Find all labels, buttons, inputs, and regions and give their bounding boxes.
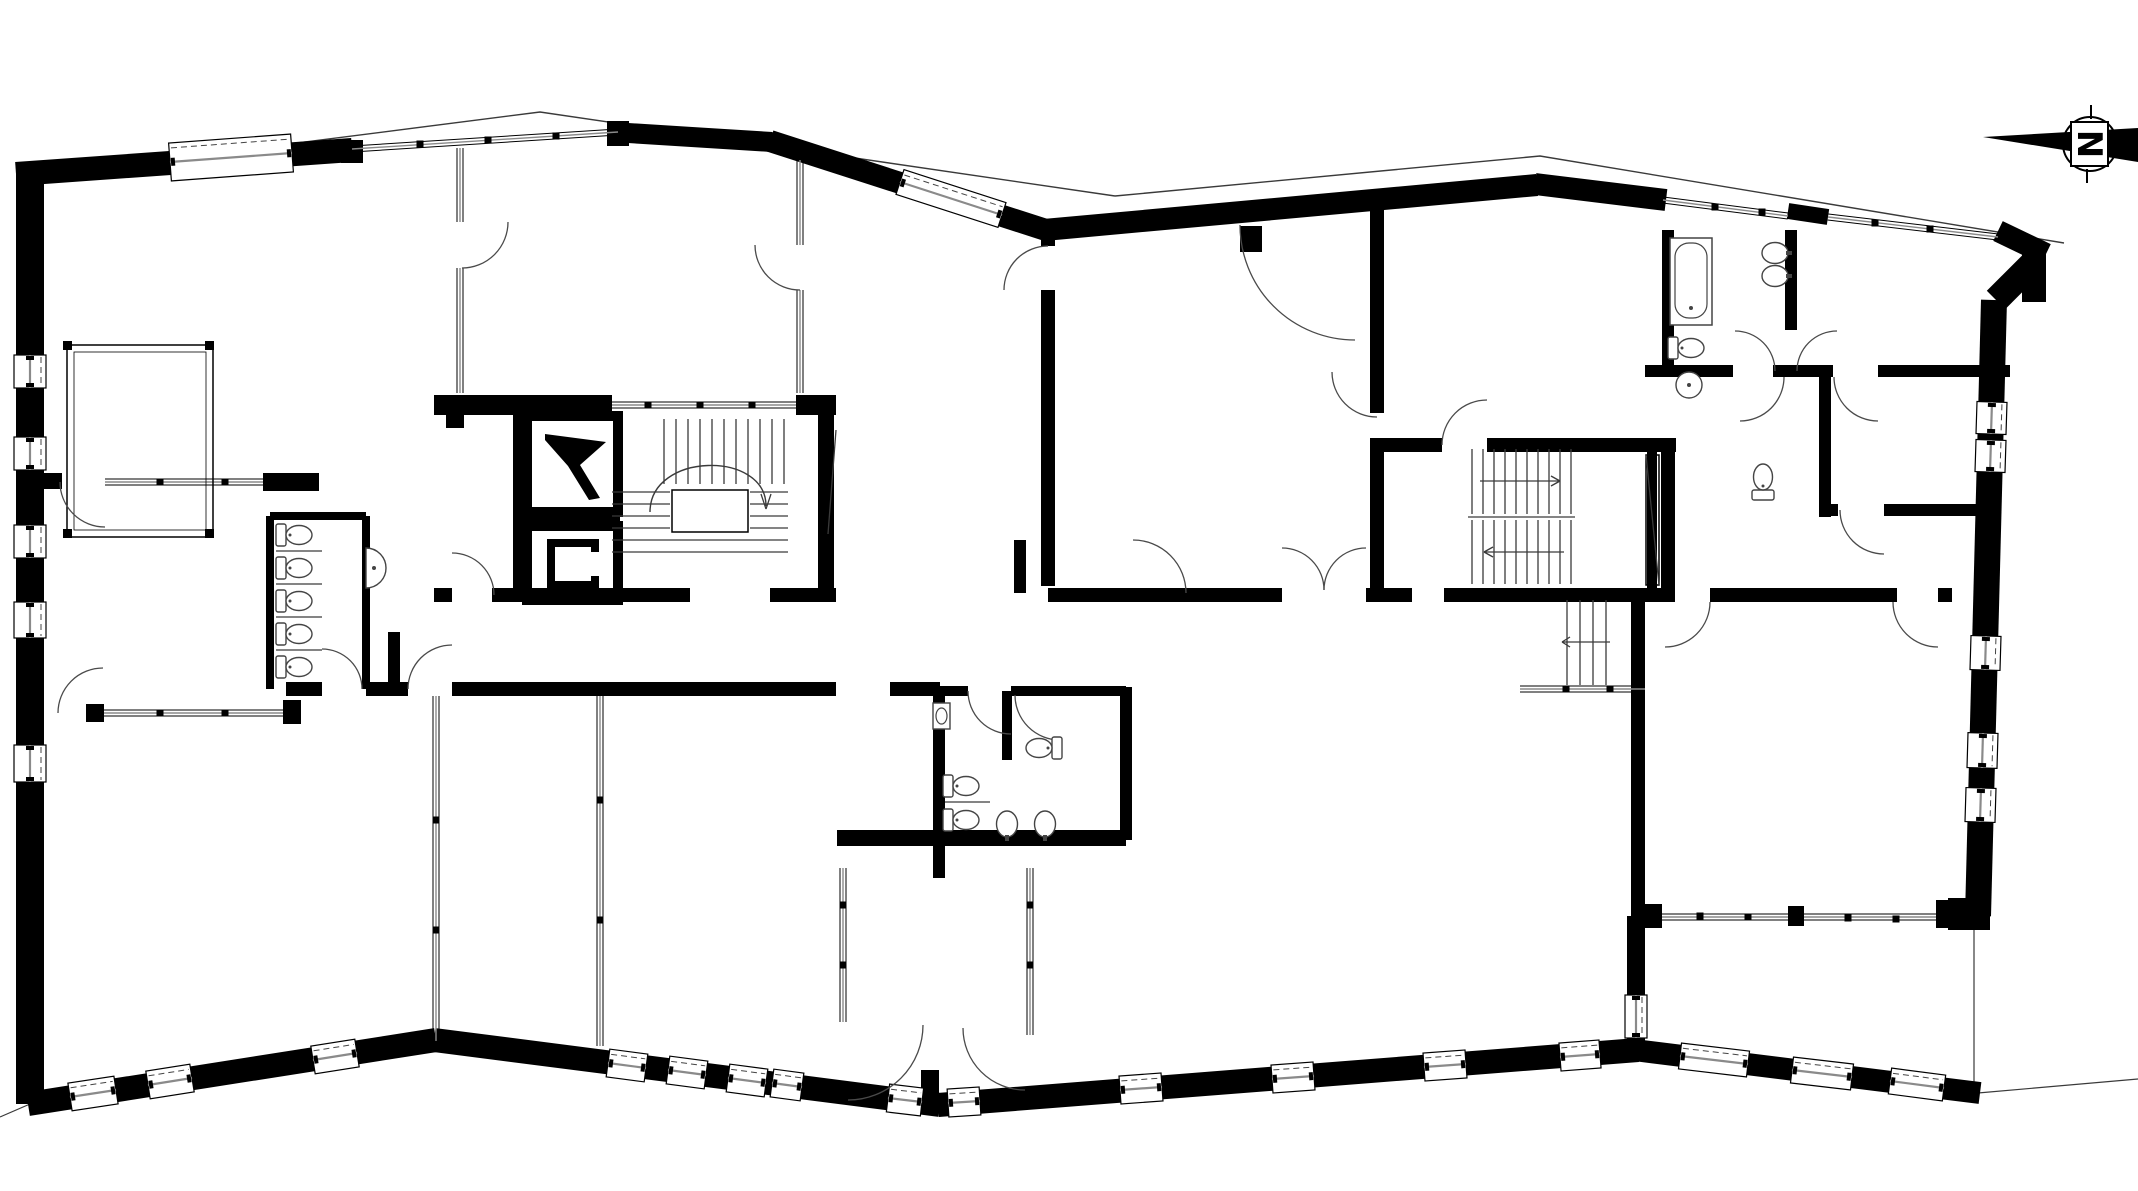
glass-partition xyxy=(597,696,603,1046)
window-symbol xyxy=(1625,995,1647,1038)
window-symbol xyxy=(947,1087,981,1117)
door-swing-arc xyxy=(1324,548,1366,590)
plumbing-fixtures xyxy=(276,238,1792,841)
window-symbol xyxy=(1888,1068,1945,1101)
glass-partition xyxy=(457,148,463,222)
window-symbol xyxy=(1965,788,1996,823)
walls xyxy=(16,121,2046,1105)
washbox-symbol xyxy=(933,703,950,729)
door-swing-arc xyxy=(1840,510,1884,554)
window-symbol xyxy=(770,1069,804,1101)
toilet-symbol xyxy=(276,557,312,579)
glass-partition xyxy=(1520,686,1645,692)
window-symbol xyxy=(1975,440,2006,473)
door-swing-arc xyxy=(1893,602,1938,647)
window-symbol xyxy=(169,134,294,181)
roundbasin-symbol xyxy=(1676,372,1702,398)
window-symbol xyxy=(14,437,46,470)
door-swing-arc xyxy=(408,645,452,689)
floor-plan-page: N xyxy=(0,0,2138,1191)
door-swing-arc xyxy=(755,245,800,290)
glass-partition xyxy=(840,868,846,1022)
door-swing-arc xyxy=(1015,695,1060,740)
window-symbol xyxy=(1559,1040,1601,1071)
door-swing-arc xyxy=(963,1028,1025,1090)
toilet-symbol xyxy=(1752,464,1774,500)
window-symbol xyxy=(606,1049,648,1082)
window-symbol xyxy=(726,1064,768,1097)
door-swing-arc xyxy=(1004,246,1048,290)
door-swing-arc xyxy=(1133,540,1186,593)
toilet-symbol xyxy=(943,775,979,797)
glass-partition xyxy=(457,268,463,393)
window-symbol xyxy=(14,355,46,388)
floor-plan-canvas: N xyxy=(0,0,2138,1191)
window-symbol xyxy=(68,1076,118,1111)
window-symbol xyxy=(311,1039,359,1074)
glass-partitions xyxy=(103,129,1998,1046)
glass-partition xyxy=(797,160,803,245)
door-swing-arc xyxy=(1735,331,1775,371)
elevator-symbol xyxy=(545,434,606,500)
halfbasin-symbol xyxy=(366,548,386,588)
window-symbol xyxy=(1678,1043,1749,1077)
door-swing-arc xyxy=(322,649,362,689)
window-symbol xyxy=(886,1084,923,1116)
glass-partition xyxy=(433,696,439,1041)
door-swing-arc xyxy=(1740,377,1784,421)
toilet-symbol xyxy=(276,590,312,612)
stair-treads xyxy=(276,419,1659,802)
glass-partition xyxy=(1663,197,1789,219)
tub-symbol xyxy=(1670,238,1712,325)
toilet-symbol xyxy=(276,524,312,546)
window-symbol xyxy=(1271,1062,1315,1093)
glass-partition xyxy=(1027,868,1033,1035)
window-symbol xyxy=(1423,1050,1467,1081)
glass-partition xyxy=(797,290,803,393)
north-label-text: N xyxy=(2069,130,2109,158)
door-swing-arc xyxy=(1442,400,1487,445)
toilet-symbol xyxy=(1026,737,1062,759)
window-symbol xyxy=(14,525,46,558)
toilet-symbol xyxy=(943,809,979,831)
window-symbol xyxy=(1967,733,1998,769)
window-symbol xyxy=(1119,1073,1163,1104)
toilet-symbol xyxy=(276,623,312,645)
window-symbol xyxy=(14,602,46,638)
toilet-symbol xyxy=(276,656,312,678)
door-swing-arc xyxy=(1665,602,1710,647)
door-swing-arcs xyxy=(58,222,1938,1100)
glass-partition xyxy=(103,710,283,716)
window-symbol xyxy=(14,745,46,782)
toilet-symbol xyxy=(1668,337,1704,359)
door-swing-arc xyxy=(452,553,494,595)
window-symbol xyxy=(666,1056,708,1089)
north-arrow: N xyxy=(1983,105,2138,183)
glass-partition xyxy=(105,479,263,485)
window-symbol xyxy=(146,1064,194,1099)
door-swing-arc xyxy=(1282,548,1324,590)
door-swing-arc xyxy=(1834,377,1878,421)
glass-partition xyxy=(612,402,796,408)
window-symbol xyxy=(1976,402,2007,435)
door-swing-arc xyxy=(462,222,508,268)
window-symbol xyxy=(1970,636,2001,671)
window-symbol xyxy=(1790,1057,1853,1090)
